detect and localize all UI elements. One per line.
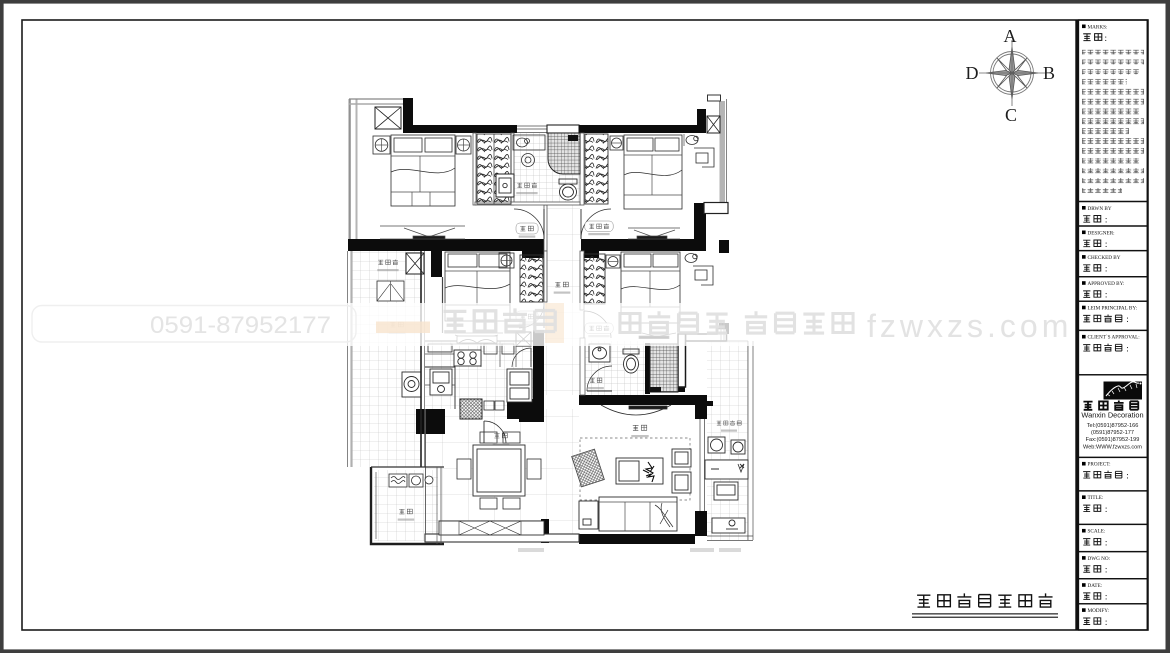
svg-text:Wanxin Decoration: Wanxin Decoration xyxy=(1081,411,1143,420)
svg-text:A: A xyxy=(1004,26,1017,46)
svg-text::: : xyxy=(1126,470,1129,480)
svg-text:DWG NO:: DWG NO: xyxy=(1088,556,1111,562)
svg-text::: : xyxy=(1105,239,1108,249)
svg-text:(0591)87952-177: (0591)87952-177 xyxy=(1091,430,1134,436)
svg-text:B: B xyxy=(1043,63,1055,83)
svg-text:MODIFY:: MODIFY: xyxy=(1088,608,1110,614)
svg-text:DESIGNER:: DESIGNER: xyxy=(1088,230,1116,236)
svg-text::: : xyxy=(1105,617,1108,627)
svg-text:CHECKED BY: CHECKED BY xyxy=(1088,255,1121,261)
svg-text::: : xyxy=(1105,33,1108,43)
svg-text::: : xyxy=(1105,264,1108,274)
svg-text:MARKS:: MARKS: xyxy=(1088,24,1108,30)
svg-text:PROJECT:: PROJECT: xyxy=(1088,462,1112,468)
svg-text:DATE:: DATE: xyxy=(1088,583,1103,589)
svg-text:Web:WWW.fzwxzs.com: Web:WWW.fzwxzs.com xyxy=(1083,445,1142,451)
svg-text:LEIM PRINCIPAL BY:: LEIM PRINCIPAL BY: xyxy=(1088,306,1138,312)
svg-text:CLIENT`S APPROVAL:: CLIENT`S APPROVAL: xyxy=(1088,335,1141,341)
svg-text:TITLE:: TITLE: xyxy=(1088,495,1104,501)
svg-text::: : xyxy=(1126,343,1129,353)
svg-text:SCALE:: SCALE: xyxy=(1088,529,1106,535)
svg-text::: : xyxy=(1105,592,1108,602)
svg-text:0591-87952177: 0591-87952177 xyxy=(150,312,331,339)
svg-text::: : xyxy=(1105,290,1108,300)
svg-text:fzwxzs.com: fzwxzs.com xyxy=(867,308,1072,344)
svg-text:DRWN BY: DRWN BY xyxy=(1088,206,1112,212)
svg-text::: : xyxy=(1105,537,1108,547)
svg-text:APPROVED BY:: APPROVED BY: xyxy=(1088,281,1125,287)
svg-text:C: C xyxy=(1005,105,1017,125)
svg-text:Fax:(0591)87952-199: Fax:(0591)87952-199 xyxy=(1086,437,1140,443)
svg-text::: : xyxy=(1105,504,1108,514)
svg-text::: : xyxy=(1126,314,1129,324)
svg-text::: : xyxy=(1105,565,1108,575)
svg-text::: : xyxy=(1105,215,1108,225)
svg-text:D: D xyxy=(966,63,979,83)
svg-text:Tel:(0591)87952-166: Tel:(0591)87952-166 xyxy=(1087,423,1139,429)
